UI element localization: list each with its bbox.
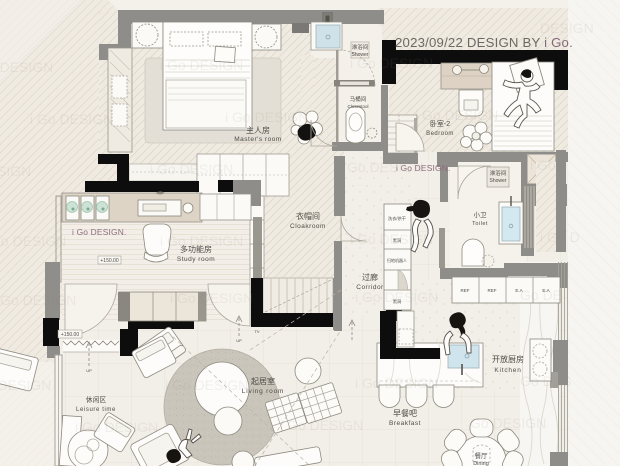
svg-text:Master's room: Master's room bbox=[234, 136, 281, 143]
svg-text:Bedroom: Bedroom bbox=[426, 131, 454, 137]
svg-text:i Go DESIGN: i Go DESIGN bbox=[355, 289, 438, 305]
svg-text:Go DESIGN: Go DESIGN bbox=[470, 415, 546, 431]
svg-text:TV: TV bbox=[254, 329, 259, 334]
svg-text:开放厨房: 开放厨房 bbox=[492, 354, 524, 364]
svg-text:餐厅: 餐厅 bbox=[475, 451, 489, 460]
svg-text:i Go DESIGN: i Go DESIGN bbox=[150, 161, 233, 177]
svg-text:UP: UP bbox=[236, 338, 242, 343]
svg-text:i Go DESIGN: i Go DESIGN bbox=[350, 231, 433, 247]
svg-text:i Go DESIGN: i Go DESIGN bbox=[30, 111, 113, 127]
svg-text:起居室: 起居室 bbox=[251, 376, 275, 386]
svg-text:i Go D: i Go D bbox=[540, 229, 580, 245]
svg-text:Closestool: Closestool bbox=[347, 104, 368, 109]
svg-text:i Go DESIGN: i Go DESIGN bbox=[280, 417, 363, 433]
svg-text:Toilet: Toilet bbox=[472, 221, 488, 227]
svg-text:Shower: Shower bbox=[490, 178, 507, 184]
svg-text:洗衣/烘干: 洗衣/烘干 bbox=[388, 215, 406, 222]
svg-text:过廊: 过廊 bbox=[362, 272, 378, 282]
svg-text:REF: REF bbox=[488, 288, 497, 293]
svg-text:i Go DESIGN.: i Go DESIGN. bbox=[72, 227, 127, 237]
svg-text:马桶间: 马桶间 bbox=[350, 95, 367, 103]
svg-text:Go DESIGN: Go DESIGN bbox=[0, 163, 31, 179]
svg-text:i Go DESIGN: i Go DESIGN bbox=[350, 55, 433, 71]
svg-text:Kitchen: Kitchen bbox=[494, 367, 521, 374]
svg-text:Breakfast: Breakfast bbox=[389, 420, 421, 427]
svg-text:淋浴间: 淋浴间 bbox=[352, 43, 369, 51]
svg-text:Dining: Dining bbox=[473, 461, 489, 466]
svg-text:DESIGN: DESIGN bbox=[540, 20, 594, 36]
svg-text:Go DE: Go DE bbox=[520, 287, 562, 303]
svg-text:早餐吧: 早餐吧 bbox=[393, 409, 417, 418]
svg-text:i Go DESIGN: i Go DESIGN bbox=[355, 375, 438, 391]
svg-text:Go DESIGN: Go DESIGN bbox=[0, 292, 76, 308]
svg-text:i Go DESIGN: i Go DESIGN bbox=[415, 107, 498, 123]
svg-text:i Go DESIGN: i Go DESIGN bbox=[0, 59, 53, 75]
svg-text:+150.00: +150.00 bbox=[100, 258, 118, 264]
svg-text:i Go DESIGN: i Go DESIGN bbox=[225, 109, 308, 125]
svg-text:i Go DESIGN: i Go DESIGN bbox=[160, 57, 243, 73]
svg-text:i Go DESIGN: i Go DESIGN bbox=[165, 377, 248, 393]
svg-text:i Go DESIGN: i Go DESIGN bbox=[340, 159, 423, 175]
svg-text:+150.00: +150.00 bbox=[61, 332, 79, 338]
svg-text:Leisure time: Leisure time bbox=[76, 407, 116, 413]
svg-text:淋浴间: 淋浴间 bbox=[490, 169, 507, 177]
svg-text:REF: REF bbox=[461, 288, 470, 293]
svg-text:i Go DESIGN: i Go DESIGN bbox=[75, 419, 158, 435]
svg-text:衣帽间: 衣帽间 bbox=[296, 211, 320, 221]
svg-text:扫地机器人: 扫地机器人 bbox=[387, 257, 407, 263]
svg-text:i Go DESIGN: i Go DESIGN bbox=[170, 290, 253, 306]
svg-text:休闲区: 休闲区 bbox=[86, 395, 107, 404]
svg-text:i Go: i Go bbox=[530, 157, 556, 173]
svg-text:i Go DESIGN: i Go DESIGN bbox=[160, 233, 243, 249]
svg-text:Cloakroom: Cloakroom bbox=[290, 223, 326, 230]
svg-text:Go DES: Go DES bbox=[520, 373, 571, 389]
svg-text:2023/09/22 DESIGN BY i Go.: 2023/09/22 DESIGN BY i Go. bbox=[395, 35, 573, 50]
svg-text:小卫: 小卫 bbox=[474, 210, 488, 219]
svg-text:Go DESIGN: Go DESIGN bbox=[0, 377, 51, 393]
svg-text:主人房: 主人房 bbox=[246, 125, 270, 135]
svg-text:UP: UP bbox=[86, 368, 92, 373]
svg-text:Study room: Study room bbox=[177, 256, 215, 263]
svg-text:Go DESIGN: Go DESIGN bbox=[0, 233, 66, 249]
